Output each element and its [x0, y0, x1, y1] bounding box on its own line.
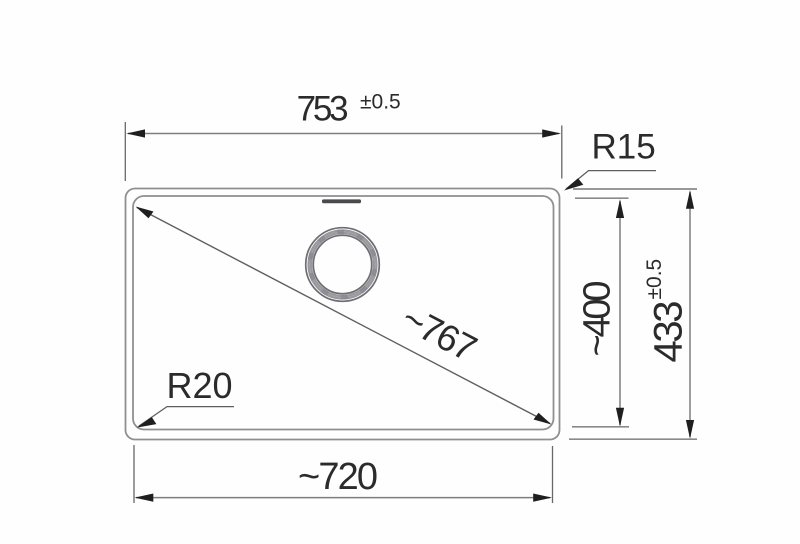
- svg-text:R15: R15: [592, 128, 656, 167]
- svg-text:~400: ~400: [577, 281, 619, 357]
- svg-text:753: 753: [297, 90, 349, 129]
- svg-text:±0.5: ±0.5: [643, 259, 666, 300]
- svg-text:~720: ~720: [298, 456, 378, 498]
- svg-text:±0.5: ±0.5: [360, 91, 401, 114]
- svg-text:~767: ~767: [395, 297, 483, 369]
- svg-text:R20: R20: [167, 365, 233, 406]
- svg-text:433: 433: [647, 301, 691, 363]
